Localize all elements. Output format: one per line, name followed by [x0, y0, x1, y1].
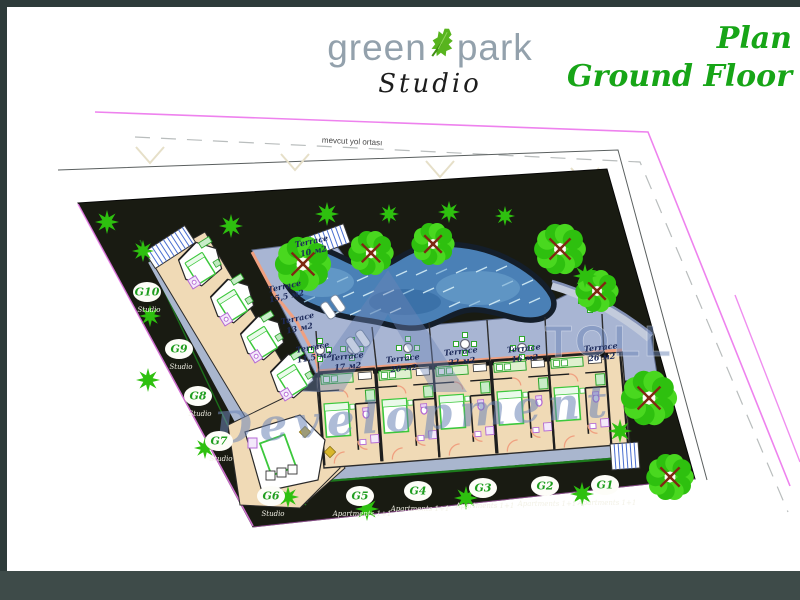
svg-text:Studio: Studio — [169, 363, 192, 371]
svg-text:Studio: Studio — [188, 410, 211, 418]
bush-icon — [495, 206, 515, 226]
svg-text:G6: G6 — [262, 490, 279, 503]
bush-icon — [315, 202, 339, 226]
unit-badge: G8Studio — [184, 386, 212, 418]
tree-icon — [621, 371, 677, 425]
terrace-label: Terrace17 м2 — [329, 349, 365, 372]
svg-text:G1: G1 — [596, 479, 613, 492]
svg-text:G5: G5 — [351, 490, 368, 503]
terrace-label: Terrace22 м2 — [443, 344, 479, 367]
bush-icon — [136, 368, 160, 392]
bush-icon — [379, 204, 399, 224]
svg-text:G2: G2 — [536, 480, 553, 493]
bush-icon — [219, 214, 243, 238]
unit-badge: G7Studio — [205, 431, 233, 463]
unit-badge: G6Studio — [257, 486, 285, 518]
svg-text:Apartments 1+1: Apartments 1+1 — [455, 502, 515, 510]
tree-icon — [646, 454, 694, 500]
svg-text:G9: G9 — [170, 343, 187, 356]
tree-icon — [411, 223, 454, 265]
bush-icon — [132, 240, 154, 262]
road-centerline-label: mevcut yol ortası — [322, 136, 383, 148]
terrace-label: Terrace16 м2 — [506, 341, 542, 364]
unit-badge: G10Studio — [133, 282, 161, 314]
svg-text:Apartments 1+1: Apartments 1+1 — [517, 500, 577, 508]
tree-icon — [348, 231, 393, 275]
unit-badge: G9Studio — [165, 339, 193, 371]
brochure-page: green park Studio Plan Ground Floor mevc… — [0, 0, 800, 600]
svg-text:Apartments 1+1: Apartments 1+1 — [577, 499, 637, 507]
tree-icon — [534, 224, 586, 274]
svg-text:Studio: Studio — [261, 510, 284, 518]
terrace-label: Terrace20 м2 — [385, 351, 421, 374]
stairs — [610, 442, 640, 470]
svg-text:Apartments 1+1: Apartments 1+1 — [332, 510, 392, 518]
svg-text:G7: G7 — [210, 435, 227, 448]
bush-icon — [438, 201, 460, 223]
svg-text:Studio: Studio — [209, 455, 232, 463]
svg-text:Apartments 1+1: Apartments 1+1 — [390, 505, 450, 513]
svg-text:G3: G3 — [474, 482, 491, 495]
bush-icon — [95, 210, 119, 234]
svg-text:G8: G8 — [189, 390, 206, 403]
bush-icon — [573, 264, 597, 288]
svg-text:G10: G10 — [135, 286, 160, 299]
svg-text:G4: G4 — [409, 485, 426, 498]
svg-text:Studio: Studio — [137, 306, 160, 314]
terrace-label: Terrace26 м2 — [583, 340, 619, 363]
site-plan: mevcut yol ortasıTOLLDevelopmentTerrace1… — [0, 0, 800, 600]
